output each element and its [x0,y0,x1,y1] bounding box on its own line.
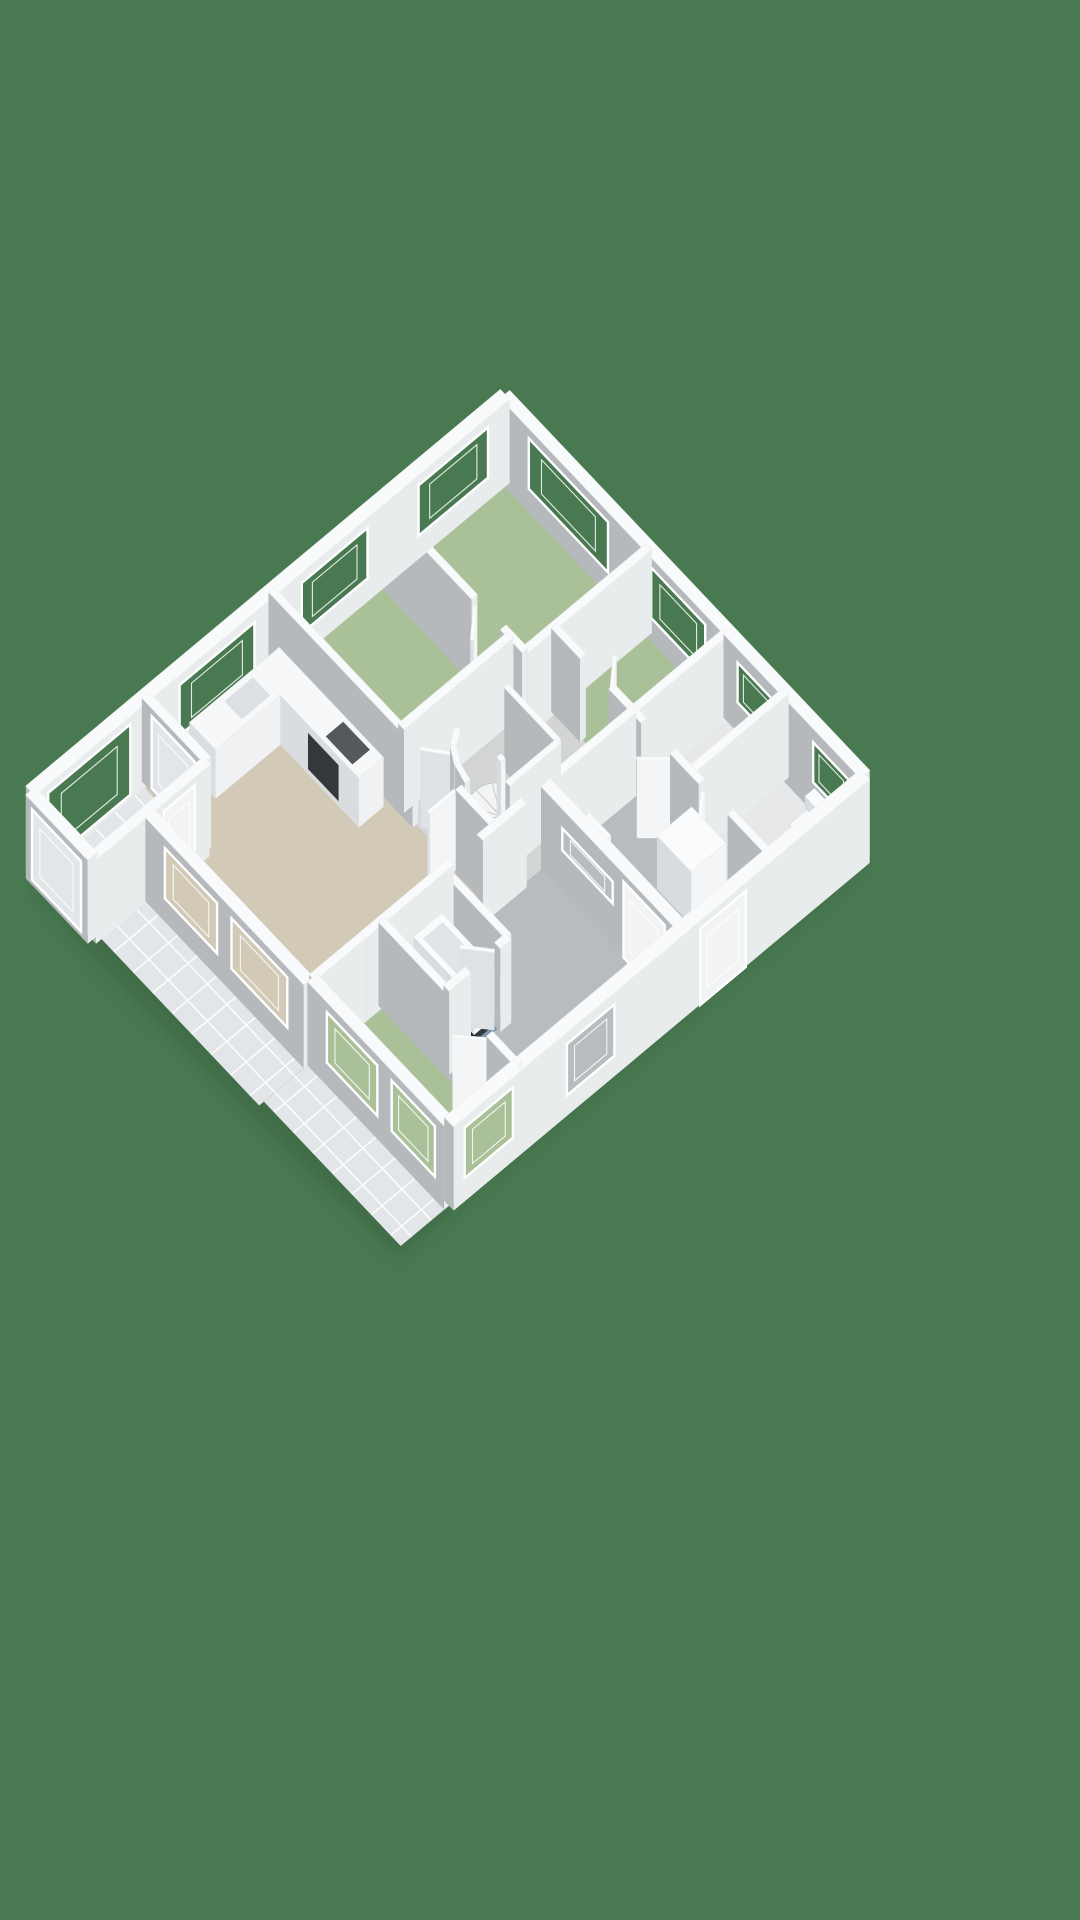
door-shower [636,757,672,839]
isometric-floorplan-svg [0,0,1080,1920]
floorplan-render [0,0,1080,1920]
wall-int-bath-east-a [495,933,512,1032]
